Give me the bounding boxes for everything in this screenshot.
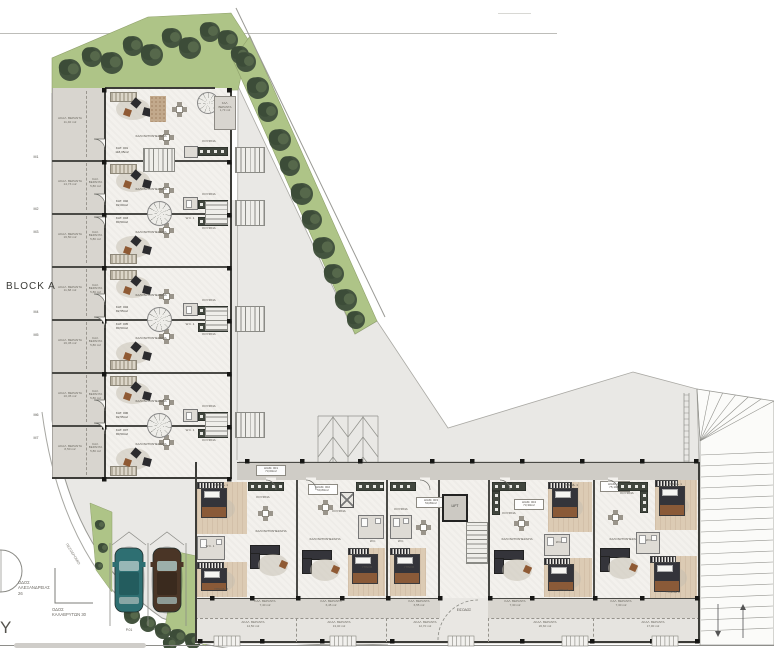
site-plan: ΑΚΑΛ. ΒΕΡΑΝΤΑ11,40 m2ΚΟΥΖΙΝΑΣΑΛΟΝΙ/ΤΡΑΠΕ… <box>0 0 774 648</box>
parking-spot-1-label: P.01 <box>118 628 140 632</box>
door-label: M3 <box>30 230 42 234</box>
parking-spot-2-label: P.02 <box>156 628 178 632</box>
door-label: M7 <box>30 436 42 440</box>
door-label: M6 <box>30 413 42 417</box>
door-label: M5 <box>30 333 42 337</box>
door-label: M4 <box>30 310 42 314</box>
cropped-word: Y <box>0 617 20 638</box>
street-2-label: ΟΔΟΣ ΚΑΛΑΒΡΥΤΩΝ 30 <box>52 607 86 618</box>
door-label: M2 <box>30 207 42 211</box>
door-label: M1 <box>30 155 42 159</box>
street-1-label: ΟΔΟΣ ΑΛΕΞΑΝΔΡΕΙΑΣ 26 <box>18 580 52 596</box>
block-a-title: BLOCK A <box>6 281 76 294</box>
annotation-labels: BLOCK AYΟΔΟΣ ΑΛΕΞΑΝΔΡΕΙΑΣ 26ΟΔΟΣ ΚΑΛΑΒΡΥ… <box>0 0 774 648</box>
sidewalk-label: ΠΕΖΟΔΡΟΜΙΟ <box>60 536 85 572</box>
